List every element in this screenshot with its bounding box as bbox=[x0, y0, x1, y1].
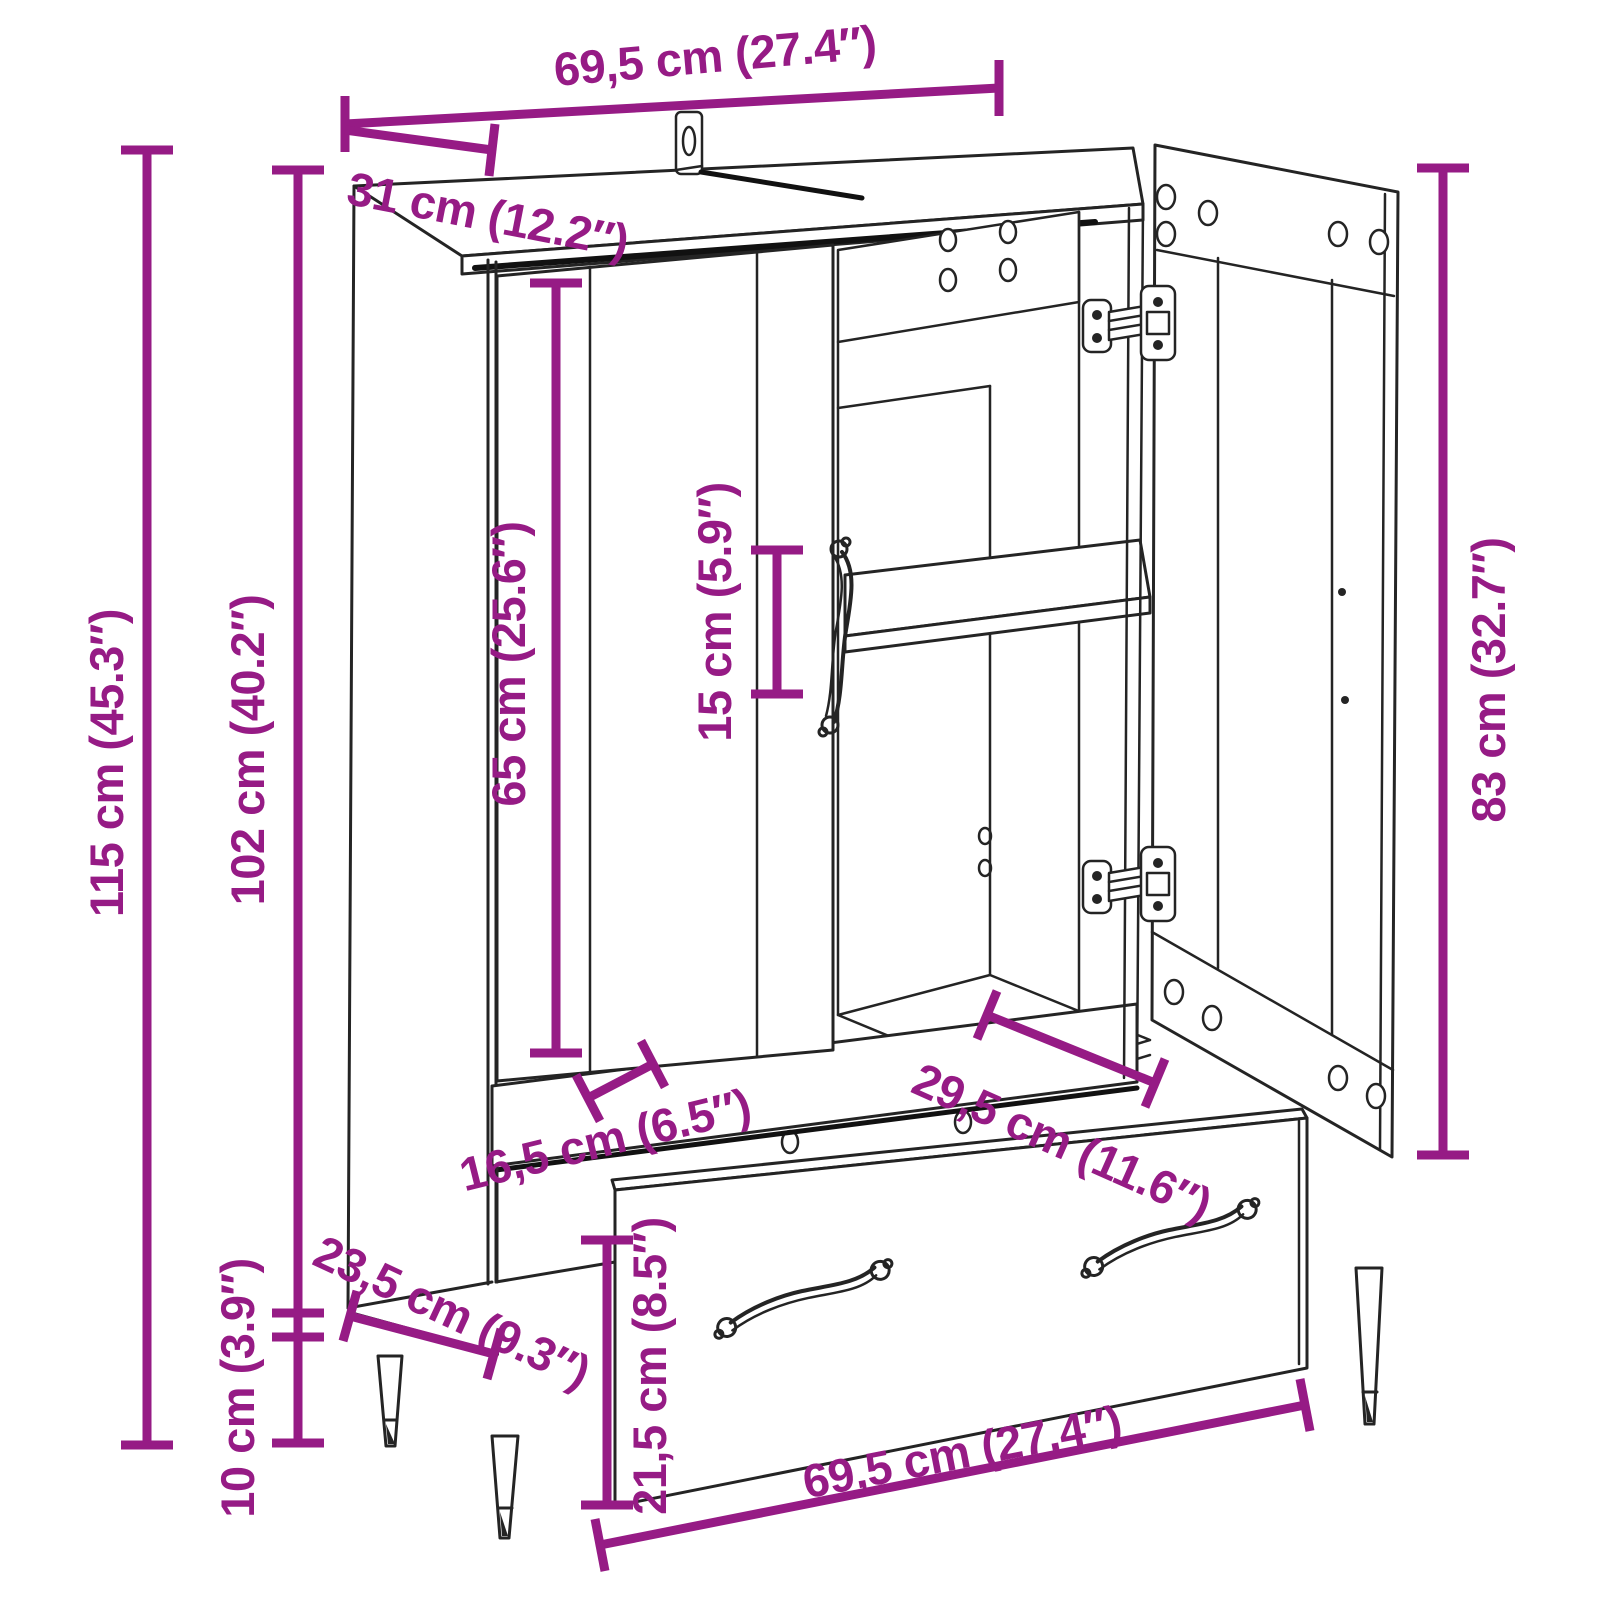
furniture-dimension-diagram: 69,5 cm (27.4″) 31 cm (12.2″) 115 cm (45… bbox=[0, 0, 1600, 1600]
dim-label-door-height: 65 cm (25.6″) bbox=[482, 521, 535, 806]
leg-front-right bbox=[1356, 1268, 1382, 1424]
dim-label-height-overall: 115 cm (45.3″) bbox=[80, 609, 133, 917]
leg-rear-left bbox=[378, 1356, 402, 1446]
left-door bbox=[497, 245, 852, 1081]
hinge-bottom-icon bbox=[1083, 847, 1175, 921]
dim-height-overall: 115 cm (45.3″) bbox=[80, 150, 173, 1445]
dim-label-handle-length: 15 cm (5.9″) bbox=[688, 482, 741, 741]
dim-height-carcass: 102 cm (40.2″) 10 cm (3.9″) bbox=[211, 170, 324, 1518]
right-door-open bbox=[1152, 145, 1398, 1157]
dim-label-drawer-height: 21,5 cm (8.5″) bbox=[623, 1217, 676, 1515]
middle-shelf bbox=[845, 540, 1150, 876]
dim-label-height-carcass: 102 cm (40.2″) bbox=[221, 595, 274, 906]
dim-label-open-door-height: 83 cm (32.7″) bbox=[1462, 537, 1515, 822]
dim-label-width-top: 69,5 cm (27.4″) bbox=[552, 15, 879, 96]
leg-front-left bbox=[492, 1436, 518, 1538]
dim-label-leg-height: 10 cm (3.9″) bbox=[211, 1258, 264, 1517]
dim-drawer-height: 21,5 cm (8.5″) bbox=[581, 1217, 676, 1515]
dim-base-depth: 23,5 cm (9.3″) bbox=[306, 1225, 598, 1399]
dim-width-top: 69,5 cm (27.4″) bbox=[345, 15, 999, 152]
dim-open-door-height: 83 cm (32.7″) bbox=[1417, 168, 1515, 1155]
cabinet-line-drawing: 69,5 cm (27.4″) 31 cm (12.2″) 115 cm (45… bbox=[0, 0, 1600, 1600]
